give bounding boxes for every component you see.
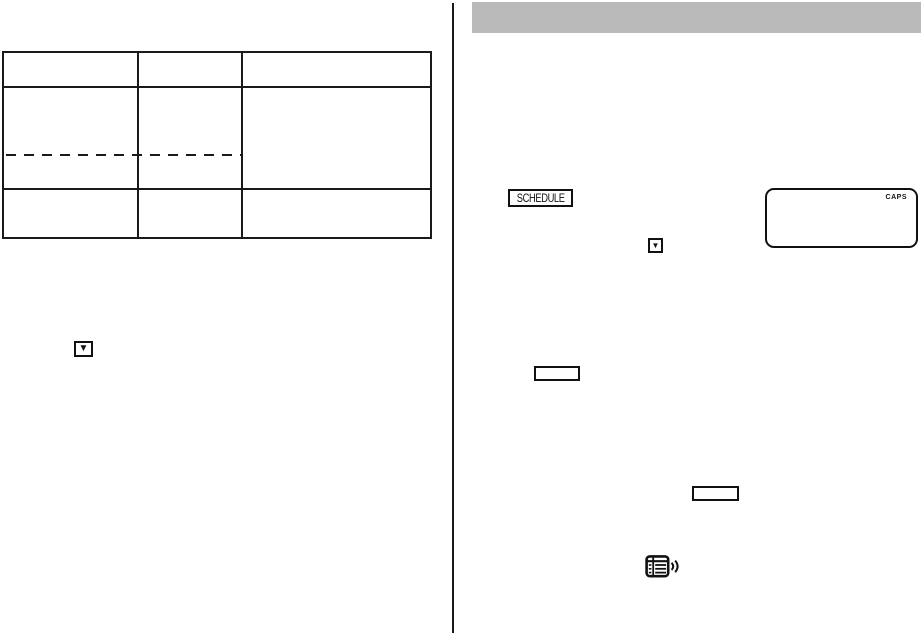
page-divider-line xyxy=(452,3,454,633)
down-arrow-key-image: ▼ xyxy=(74,341,93,357)
blank-table xyxy=(2,51,432,239)
scanned-manual-page: ▼ SCHEDULE CAPS ▼ xyxy=(0,0,921,636)
schedule-key-label: SCHEDULE xyxy=(517,191,565,205)
table-column-divider xyxy=(137,53,139,237)
down-arrow-key-image: ▼ xyxy=(648,238,663,253)
table-row-divider xyxy=(4,188,430,190)
lcd-display-image: CAPS xyxy=(765,188,918,248)
caps-indicator: CAPS xyxy=(886,194,907,201)
down-arrow-icon: ▼ xyxy=(652,242,660,250)
down-arrow-icon: ▼ xyxy=(79,344,89,354)
table-dashed-divider xyxy=(6,154,243,156)
section-header-bar xyxy=(472,2,921,33)
table-row-divider xyxy=(4,86,430,88)
list-with-sound-waves-icon xyxy=(645,554,679,579)
schedule-key-image: SCHEDULE xyxy=(508,189,573,207)
table-column-divider xyxy=(241,53,243,237)
blank-key-image xyxy=(534,366,580,381)
blank-key-image xyxy=(692,486,739,501)
